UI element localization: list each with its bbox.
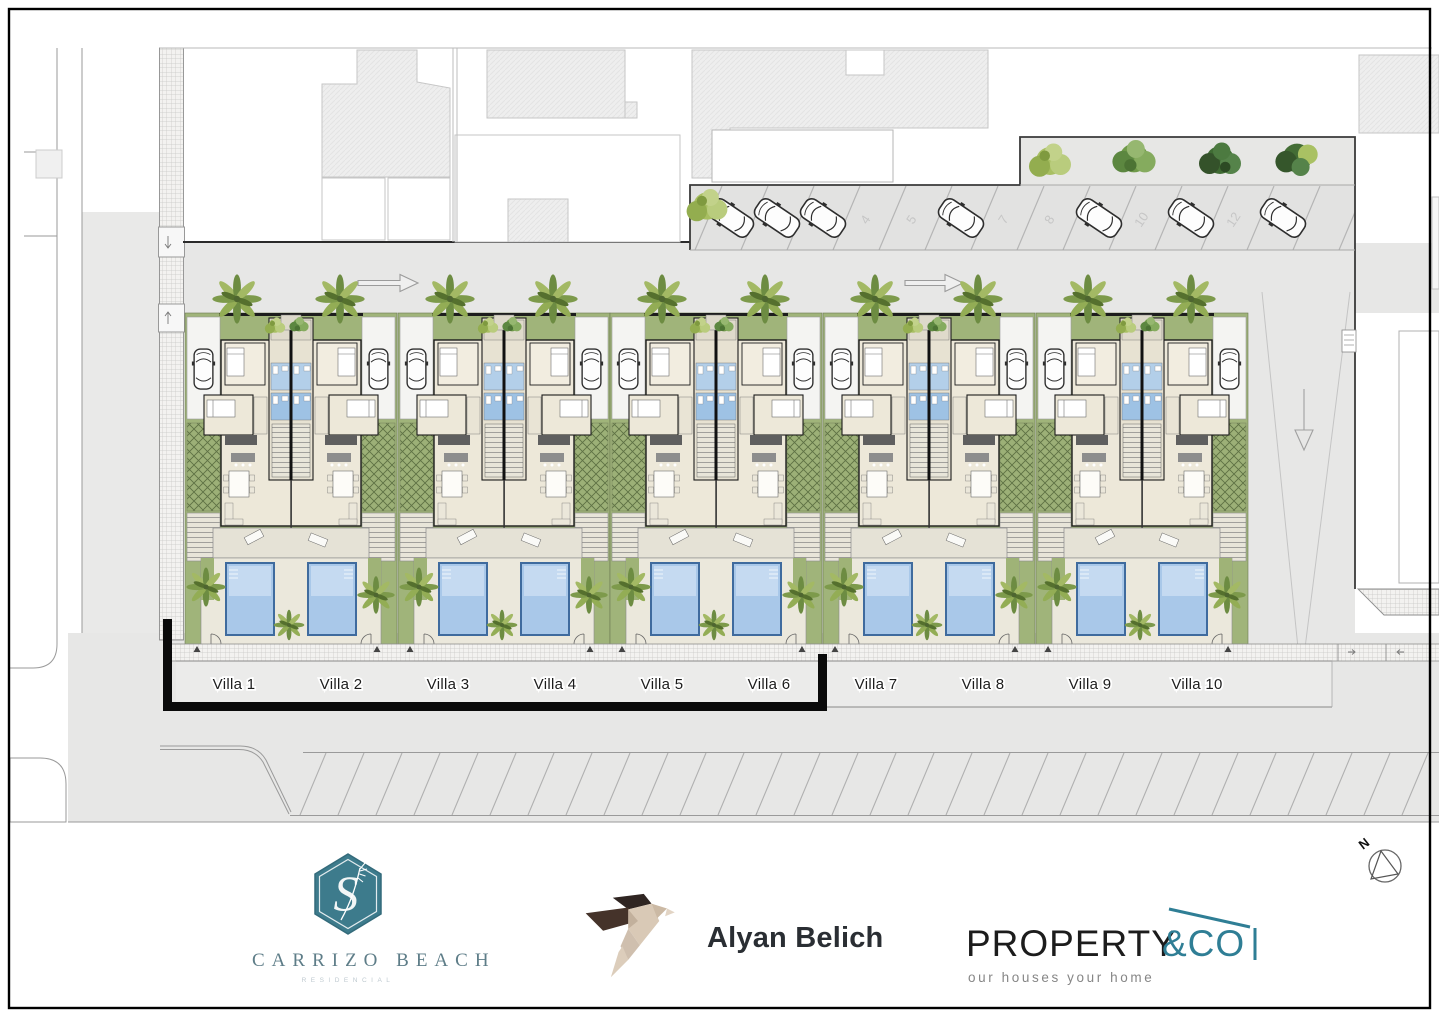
compass-north-label: N bbox=[1356, 835, 1373, 853]
villa-label: Villa 3 bbox=[427, 676, 470, 693]
carrizo-monogram: S bbox=[334, 865, 359, 921]
villa-blocks bbox=[185, 274, 1248, 647]
carrizo-hexagon-emblem: S bbox=[311, 852, 385, 936]
carrizo-beach-logo: S CARRIZO BEACH RESIDENCIAL bbox=[252, 852, 444, 984]
villa-block-1-2 bbox=[185, 274, 397, 647]
site-plan-drawing: 4 5 7 8 10 12 bbox=[0, 0, 1439, 1017]
small-lot bbox=[36, 150, 62, 178]
alyan-wordmark: Alyan Belich bbox=[707, 922, 883, 955]
alyan-belich-logo: Alyan Belich bbox=[583, 892, 883, 984]
villa-block-5-6 bbox=[610, 274, 822, 647]
villa-label: Villa 1 bbox=[213, 676, 256, 693]
property-wordmark-primary: PROPERTY bbox=[966, 923, 1177, 964]
property-wordmark-accent: &CO bbox=[1162, 923, 1245, 964]
compass-needle bbox=[1371, 851, 1398, 879]
villa-label: Villa 10 bbox=[1171, 676, 1222, 693]
property-co-lockup: PROPERTY &CO our houses your home bbox=[966, 900, 1268, 992]
carrizo-subtitle: RESIDENCIAL bbox=[252, 977, 444, 984]
carrizo-wordmark: CARRIZO BEACH bbox=[252, 950, 444, 972]
villa-label: Villa 2 bbox=[320, 676, 363, 693]
street-edge-lines bbox=[10, 48, 82, 668]
villa-label: Villa 9 bbox=[1069, 676, 1112, 693]
villa-block-7-8 bbox=[823, 274, 1035, 647]
north-compass: N bbox=[1356, 835, 1401, 882]
villa-block-3-4 bbox=[398, 274, 610, 647]
origami-bird-icon bbox=[583, 892, 691, 984]
villa-label: Villa 8 bbox=[962, 676, 1005, 693]
villa-label: Villa 4 bbox=[534, 676, 577, 693]
site-plan-canvas: 4 5 7 8 10 12 bbox=[0, 0, 1439, 1017]
property-tagline: our houses your home bbox=[968, 970, 1154, 985]
villa-block-9-10 bbox=[1036, 274, 1248, 647]
property-co-logo: PROPERTY &CO our houses your home bbox=[966, 900, 1268, 997]
villa-label: Villa 5 bbox=[641, 676, 684, 693]
crosswalk bbox=[1358, 589, 1439, 615]
villa-label: Villa 7 bbox=[855, 676, 898, 693]
villa-label: Villa 6 bbox=[748, 676, 791, 693]
road-corner bbox=[10, 758, 66, 822]
sidewalk-strip-left bbox=[159, 48, 185, 640]
